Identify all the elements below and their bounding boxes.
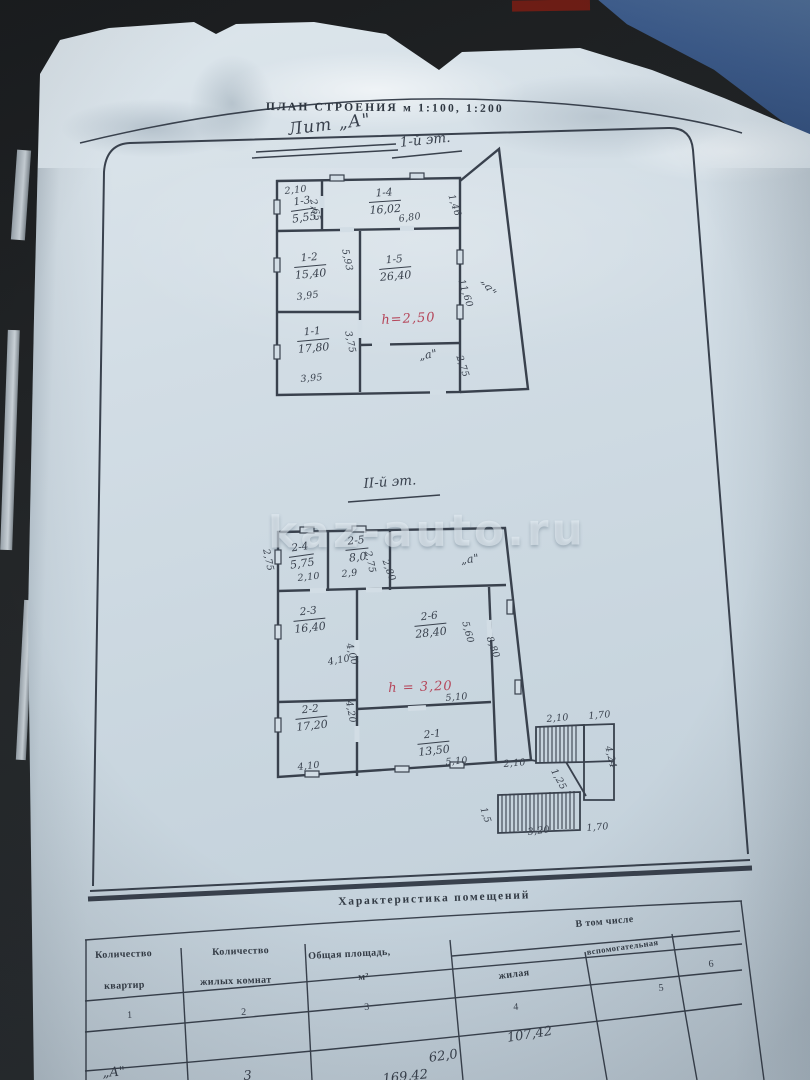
room-1-4: 1-416,02	[368, 186, 401, 217]
col4-number: 4	[513, 1002, 519, 1013]
room-2-2: 2-217,20	[294, 702, 328, 734]
room-2-4: 2-45,75	[287, 540, 315, 572]
dimension-label: 5,10	[445, 755, 468, 768]
room-1-1: 1-117,80	[296, 324, 330, 356]
room-area: 17,80	[297, 339, 330, 356]
dimension-label: 2,10	[297, 571, 320, 584]
photo-of-floor-plan-document: kaz-auto.ru ПЛАН СТРОЕНИЯ м 1:100, 1:200…	[0, 0, 810, 1080]
row-litera-value: „А"	[102, 1064, 126, 1080]
dimension-label: 2,10	[284, 184, 307, 197]
plan-title: ПЛАН СТРОЕНИЯ м 1:100, 1:200	[266, 101, 504, 115]
room-1-2: 1-215,40	[293, 250, 327, 282]
stairs-dimension-label: 1,70	[588, 709, 611, 722]
col2-number: 2	[241, 1007, 246, 1018]
col2-header-line1: Количество	[212, 945, 269, 958]
dimension-label: 2,9	[341, 567, 358, 580]
room-1-5: 1-526,40	[378, 252, 412, 284]
height-note-floor1: h=2,50	[381, 310, 436, 328]
room-area: 16,02	[369, 200, 401, 217]
col3-number: 3	[364, 1002, 370, 1013]
room-area: 15,40	[294, 265, 327, 282]
row-rooms-value: 3	[243, 1068, 252, 1080]
dimension-label: 2,10	[503, 757, 526, 770]
room-2-3: 2-316,40	[292, 604, 326, 636]
height-note-floor2: h = 3,20	[388, 679, 453, 696]
col1-header-line2: квартир	[104, 980, 145, 992]
stairs-dimension-label: 1,70	[586, 821, 609, 834]
room-2-1: 2-113,50	[416, 727, 450, 759]
dimension-label: „а"	[460, 551, 480, 566]
col5-number: 5	[658, 982, 664, 993]
col1-number: 1	[127, 1010, 132, 1021]
stairs-dimension-label: 2,10	[546, 712, 569, 725]
col3-header-line2: м²	[358, 971, 369, 983]
room-area: 26,40	[379, 267, 412, 284]
dimension-label: 3,95	[300, 372, 323, 385]
col1-header-line1: Количество	[95, 948, 152, 961]
dimension-label: 4,10	[297, 760, 320, 773]
site-watermark: kaz-auto.ru	[268, 504, 586, 558]
col6-number: 6	[708, 958, 714, 969]
room-2-6: 2-628,40	[413, 609, 447, 641]
